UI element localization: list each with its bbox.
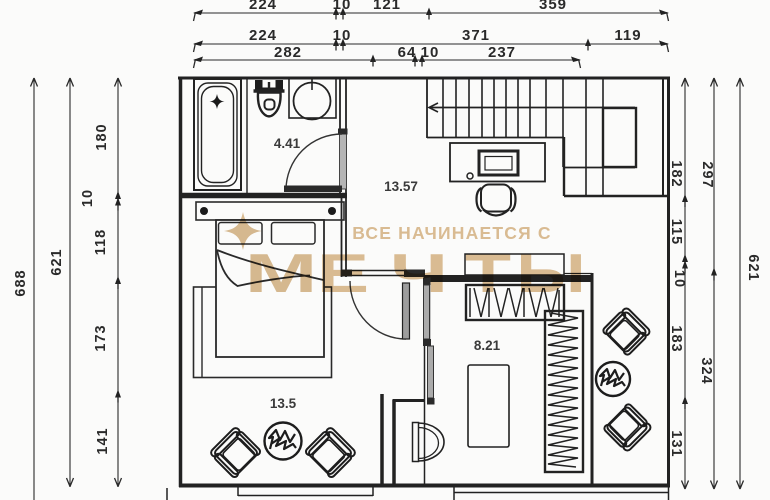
svg-text:Е: Е [317,243,369,304]
svg-text:359: 359 [539,0,567,13]
svg-text:173: 173 [93,324,109,351]
svg-text:Ы: Ы [516,243,585,304]
svg-text:324: 324 [698,357,714,384]
svg-text:10: 10 [333,0,352,13]
svg-text:13.5: 13.5 [270,396,297,411]
svg-text:ВСЕ НАЧИНАЕТСЯ С: ВСЕ НАЧИНАЕТСЯ С [352,223,552,243]
svg-text:621: 621 [745,254,761,281]
svg-text:297: 297 [699,161,715,188]
svg-text:183: 183 [668,325,684,352]
svg-text:121: 121 [373,0,401,13]
svg-text:10: 10 [80,189,96,207]
svg-text:115: 115 [668,219,684,245]
svg-text:Т: Т [465,242,511,304]
svg-text:182: 182 [668,160,684,187]
svg-text:141: 141 [95,427,111,454]
svg-text:688: 688 [13,269,29,296]
svg-text:118: 118 [93,229,109,255]
svg-text:8.21: 8.21 [474,338,501,353]
svg-text:Ч: Ч [390,242,448,304]
svg-text:282: 282 [274,44,302,61]
svg-text:64: 64 [398,44,417,61]
svg-text:10: 10 [333,27,352,44]
svg-text:10: 10 [671,270,687,288]
svg-text:119: 119 [614,27,641,44]
svg-text:180: 180 [94,123,110,150]
svg-text:224: 224 [249,0,277,13]
svg-text:131: 131 [668,430,684,457]
svg-text:10: 10 [421,44,440,61]
svg-text:13.57: 13.57 [384,179,418,194]
svg-text:4.41: 4.41 [274,136,301,151]
svg-text:371: 371 [462,27,490,44]
svg-text:237: 237 [488,44,516,61]
svg-text:621: 621 [49,248,65,275]
svg-text:224: 224 [249,27,277,44]
svg-text:М: М [245,243,318,304]
